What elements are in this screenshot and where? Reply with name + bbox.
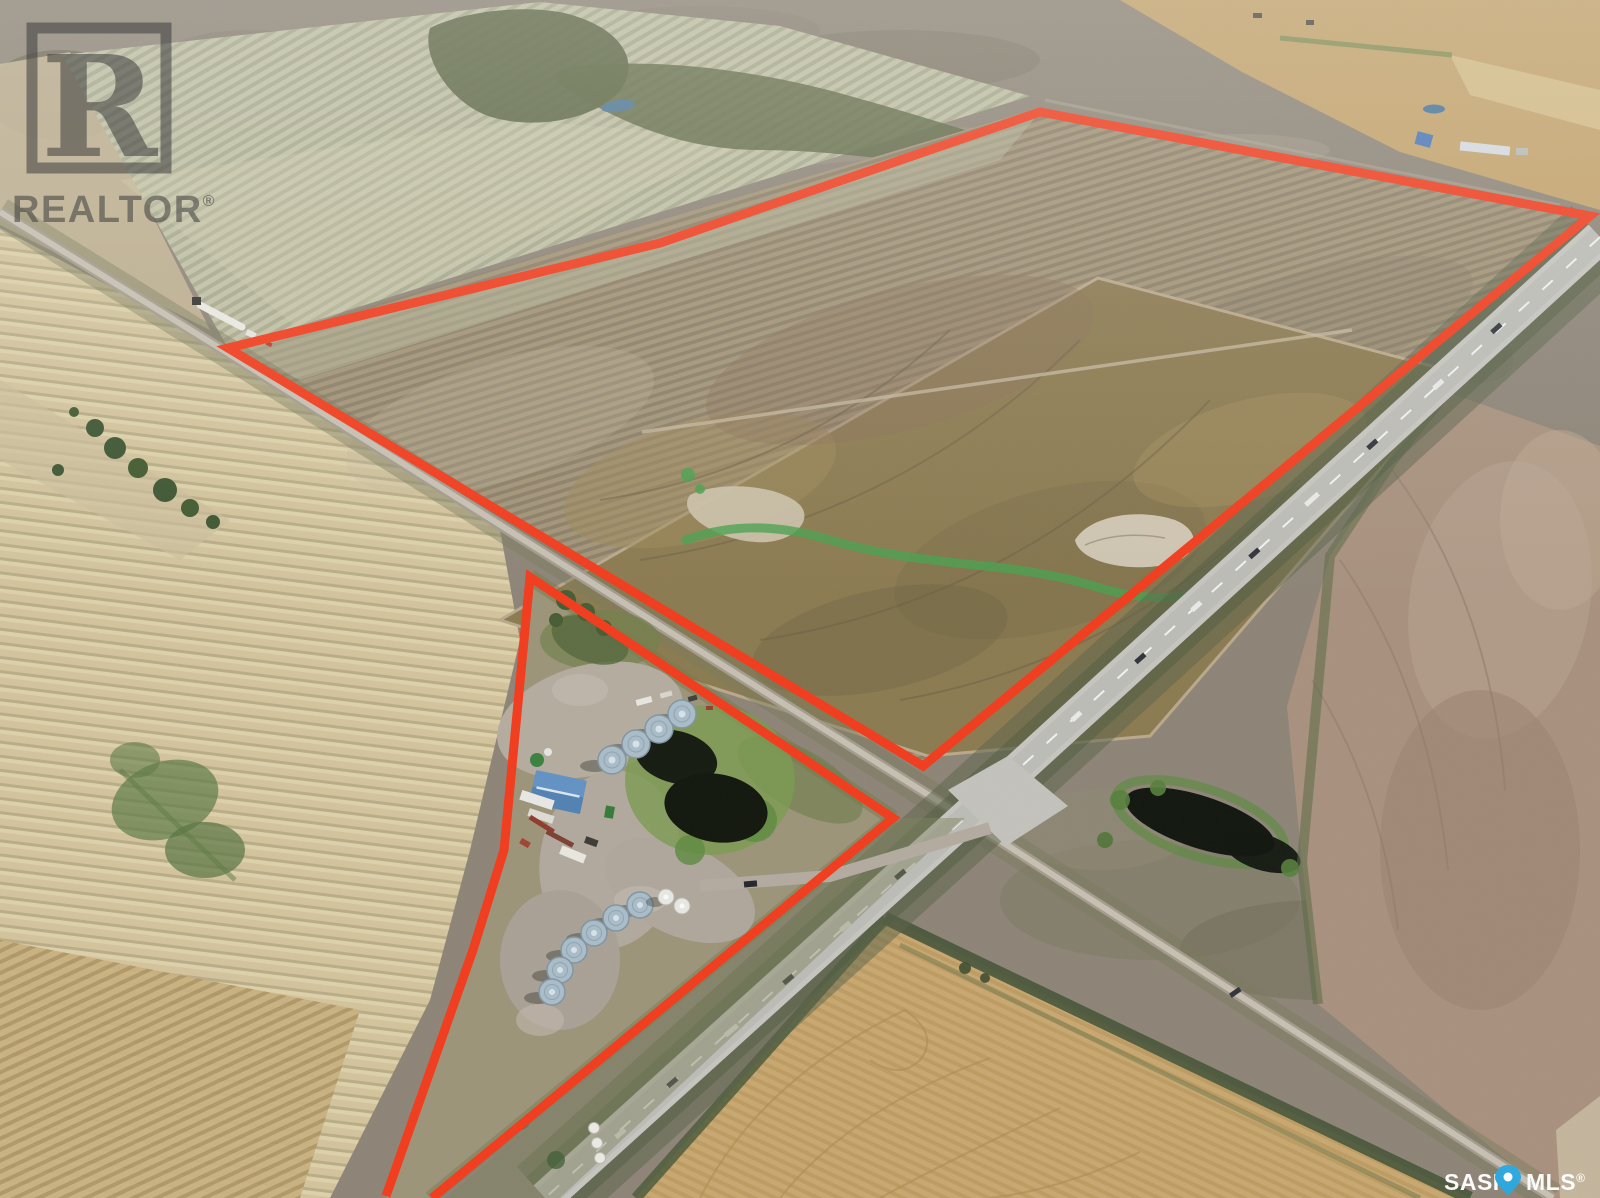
aerial-photo-canvas: R REALTOR® SASK MLS®	[0, 0, 1600, 1198]
realtor-logo-r: R	[41, 26, 159, 190]
realtor-label: REALTOR	[12, 189, 203, 231]
aerial-photo: R REALTOR® SASK MLS®	[0, 0, 1600, 1198]
mls-label: MLS	[1526, 1169, 1576, 1195]
atmospheric-haze	[0, 0, 1600, 1198]
mls-registered: ®	[1576, 1171, 1585, 1185]
realtor-registered: ®	[203, 193, 216, 210]
realtor-wordmark: REALTOR®	[12, 189, 216, 231]
